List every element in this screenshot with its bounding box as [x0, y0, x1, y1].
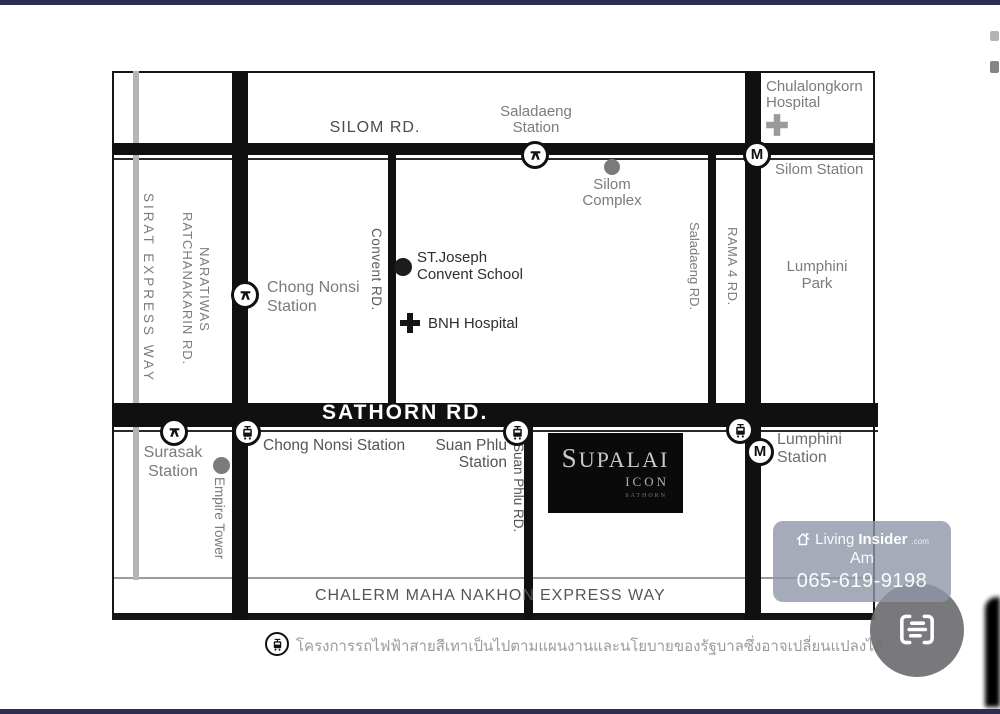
road-naratiwas — [232, 71, 248, 620]
hospital-cross-icon — [764, 112, 790, 143]
empire-tower-dot — [213, 457, 230, 474]
grayline-note-icon — [265, 632, 289, 656]
train-icon — [733, 423, 748, 438]
grayline-station-icon-lumphini — [726, 416, 754, 444]
chat-lines-icon — [894, 607, 940, 653]
label-line: Silom — [562, 177, 662, 193]
surasak-station-label: Surasak Station — [128, 443, 218, 481]
watermark-phone-number: 065-619-9198 — [797, 570, 928, 593]
silom-road-label: SILOM RD. — [320, 119, 430, 137]
saladaeng-station-label: Saladaeng Station — [486, 104, 586, 136]
house-icon — [795, 531, 811, 547]
chulalongkorn-hospital-label: Chulalongkorn Hospital — [766, 79, 863, 111]
label-line: Surasak — [128, 443, 218, 462]
chong-nonsi-grayline-station-label: Chong Nonsi Station — [263, 437, 405, 455]
watermark-brand-bold: Insider — [858, 531, 907, 548]
bts-station-icon-saladaeng — [521, 141, 549, 169]
edge-shadow-blob — [985, 597, 1000, 707]
silom-complex-label: Silom Complex — [562, 177, 662, 209]
chalerm-expressway-label-1: CHALERM MAHA NAKHON — [315, 587, 535, 605]
chong-nonsi-station-label: Chong Nonsi Station — [267, 278, 360, 316]
label-line: Chulalongkorn — [766, 79, 863, 95]
grayline-station-icon-chong-nonsi — [233, 418, 261, 446]
bottom-edge-bar — [0, 709, 1000, 714]
road-convent — [388, 145, 396, 405]
supalai-sub2-text: SATHORN — [548, 493, 683, 499]
label-line: Convent School — [417, 266, 523, 283]
watermark-brand-suffix: .com — [912, 537, 929, 546]
supalai-icon-logo: SUPALAI ICON SATHORN — [548, 433, 683, 513]
suan-phlu-station-label: Suan Phlu Station — [418, 437, 507, 471]
mrt-m-icon: M — [754, 444, 767, 459]
watermark-brand-row: LivingInsider.com — [795, 531, 929, 548]
mrt-station-icon-silom: M — [743, 141, 771, 169]
label-line: Hospital — [766, 95, 863, 111]
st-joseph-dot — [394, 258, 412, 276]
label-line: Station — [267, 297, 360, 316]
watermark-card: LivingInsider.com Am 065-619-9198 — [773, 521, 951, 602]
bnh-hospital-label: BNH Hospital — [428, 315, 518, 332]
label-line: Lumphini — [777, 258, 857, 275]
top-edge-bar — [0, 0, 1000, 5]
sathorn-road-label: SATHORN RD. — [322, 401, 488, 425]
label-line: Suan Phlu — [418, 437, 507, 454]
watermark-agent-name: Am — [850, 550, 874, 568]
st-joseph-label: ST.Joseph Convent School — [417, 249, 523, 283]
bts-logo-icon — [528, 148, 543, 163]
lumphini-station-label: Lumphini Station — [777, 431, 842, 467]
label-line: Park — [777, 275, 857, 292]
label-line: ST.Joseph — [417, 249, 523, 266]
road-saladaeng — [708, 153, 716, 405]
edge-artifact-icon — [990, 61, 999, 73]
lumphini-park-label: Lumphini Park — [777, 258, 857, 292]
empire-tower-label: Empire Tower — [212, 477, 227, 559]
silom-station-label: Silom Station — [775, 161, 863, 178]
label-line: Station — [486, 120, 586, 136]
suan-phlu-road-label: Suan Phlu RD. — [511, 443, 526, 532]
grayline-station-icon-suan-phlu — [503, 418, 531, 446]
bts-logo-icon — [167, 425, 182, 440]
bts-logo-icon — [238, 288, 253, 303]
screenshot-root: SILOM RD. SATHORN RD. SIRAT EXPRESS WAY … — [0, 0, 1000, 714]
naratiwas-road-label: NARATIWAS RATCHANAKARIN RD. — [179, 200, 213, 378]
naratiwas-line1: NARATIWAS — [196, 200, 213, 378]
label-line: Complex — [562, 193, 662, 209]
mrt-station-icon-lumphini: M — [746, 438, 774, 466]
saladaeng-road-label: Saladaeng RD. — [687, 222, 702, 310]
mrt-m-icon: M — [751, 147, 764, 162]
label-line: Station — [128, 462, 218, 481]
rama4-road-label: RAMA 4 RD. — [725, 227, 740, 306]
label-line: Station — [777, 449, 842, 467]
hospital-cross-icon — [398, 311, 422, 340]
edge-artifact-icon — [990, 31, 999, 41]
grayline-disclaimer-text: โครงการรถไฟฟ้าสายสีเทาเป็นไปตามแผนงานและ… — [296, 634, 883, 658]
train-icon — [240, 425, 255, 440]
bts-station-icon-surasak — [160, 418, 188, 446]
train-icon — [271, 638, 284, 651]
naratiwas-line2: RATCHANAKARIN RD. — [179, 200, 196, 378]
supalai-sub-text: ICON — [548, 474, 683, 490]
label-line: Station — [418, 454, 507, 471]
bts-station-icon-chong-nonsi — [231, 281, 259, 309]
label-line: Lumphini — [777, 431, 842, 449]
train-icon — [510, 425, 525, 440]
chalerm-expressway-label-2: EXPRESS WAY — [540, 587, 666, 605]
watermark-brand-light: Living — [815, 531, 854, 548]
silom-complex-dot — [604, 159, 620, 175]
sirat-expressway-label: SIRAT EXPRESS WAY — [141, 193, 156, 383]
label-line: Saladaeng — [486, 104, 586, 120]
convent-road-label: Convent RD. — [369, 228, 384, 311]
label-line: Chong Nonsi — [267, 278, 360, 297]
supalai-brand-text: SUPALAI — [548, 443, 683, 474]
road-sathorn — [112, 403, 878, 427]
